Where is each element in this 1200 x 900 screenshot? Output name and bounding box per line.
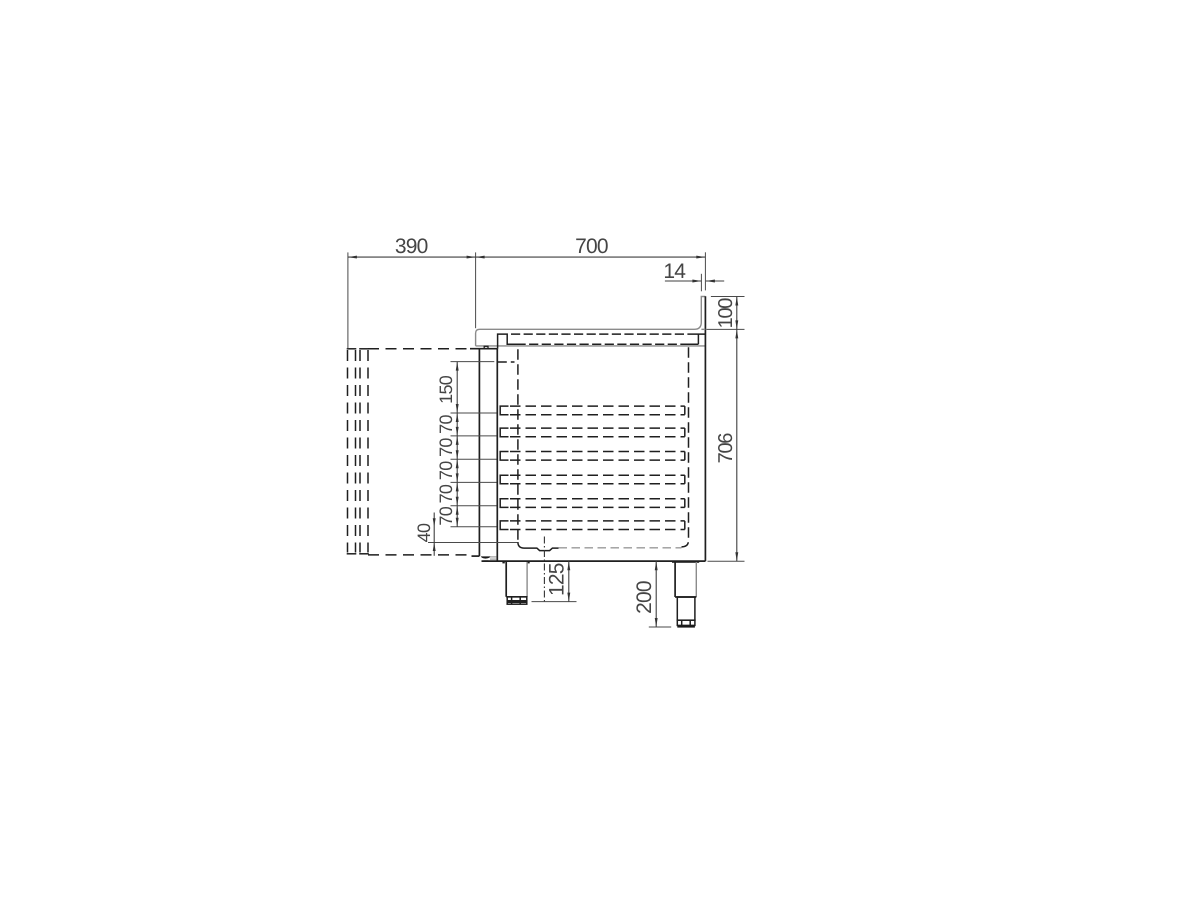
svg-text:70: 70 [436,415,456,434]
svg-text:150: 150 [436,375,456,404]
svg-text:390: 390 [395,235,428,258]
svg-text:700: 700 [575,235,608,258]
svg-text:40: 40 [414,523,434,542]
svg-text:200: 200 [633,581,656,614]
svg-text:125: 125 [545,563,568,596]
svg-text:70: 70 [436,484,456,503]
svg-text:70: 70 [436,461,456,480]
svg-text:706: 706 [715,433,737,464]
svg-text:100: 100 [715,298,737,329]
svg-text:70: 70 [436,506,456,525]
svg-text:70: 70 [436,438,456,457]
svg-text:14: 14 [663,260,686,283]
